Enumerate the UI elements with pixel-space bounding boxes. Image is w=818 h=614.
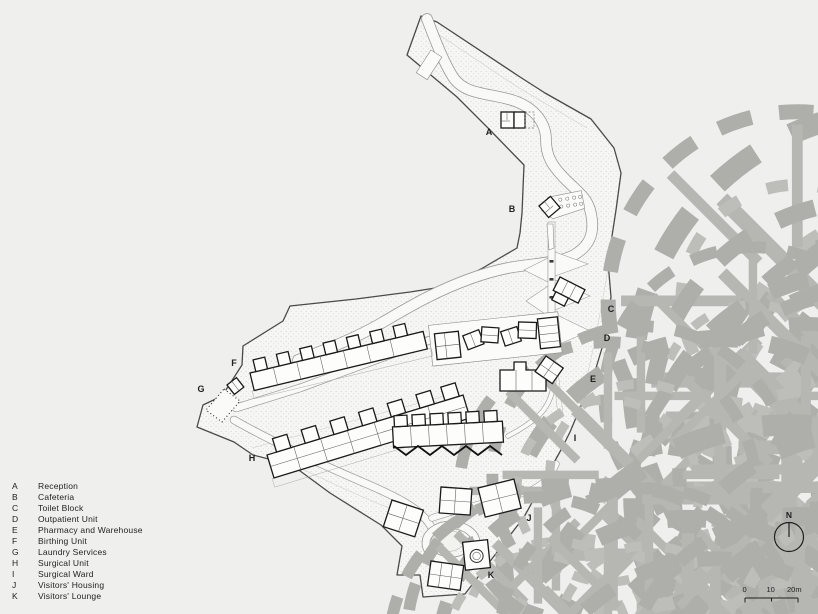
legend-key: I	[12, 569, 38, 579]
legend-key: B	[12, 492, 38, 502]
plan-label-C: C	[608, 304, 615, 314]
plan-label-K: K	[488, 570, 495, 580]
plan-label-I: I	[574, 433, 577, 443]
legend-item-G: GLaundry Services	[12, 547, 143, 558]
scale-tick-20m: 20m	[787, 585, 802, 594]
legend-label: Birthing Unit	[38, 536, 87, 546]
legend-item-C: CToilet Block	[12, 502, 143, 513]
legend-item-J: JVisitors' Housing	[12, 580, 143, 591]
plan-label-B: B	[509, 204, 516, 214]
legend: AReceptionBCafeteriaCToilet BlockDOutpat…	[12, 480, 143, 602]
plan-label-J: J	[526, 513, 531, 523]
legend-key: G	[12, 547, 38, 557]
legend-label: Outpatient Unit	[38, 514, 98, 524]
legend-label: Visitors' Lounge	[38, 591, 101, 601]
north-label: N	[786, 510, 792, 520]
legend-label: Pharmacy and Warehouse	[38, 525, 143, 535]
plan-label-F: F	[231, 358, 237, 368]
legend-key: C	[12, 503, 38, 513]
legend-key: J	[12, 580, 38, 590]
site-plan-page: ABCDEFGHIJK N 0 10 20m AReceptionBCafete…	[0, 0, 818, 614]
legend-item-D: DOutpatient Unit	[12, 513, 143, 524]
legend-label: Surgical Ward	[38, 569, 94, 579]
legend-key: K	[12, 591, 38, 601]
legend-item-H: HSurgical Unit	[12, 558, 143, 569]
legend-key: A	[12, 481, 38, 491]
legend-key: F	[12, 536, 38, 546]
legend-item-E: EPharmacy and Warehouse	[12, 524, 143, 535]
plan-label-D: D	[604, 333, 611, 343]
legend-key: E	[12, 525, 38, 535]
plan-label-E: E	[590, 374, 596, 384]
legend-item-I: ISurgical Ward	[12, 569, 143, 580]
legend-label: Reception	[38, 481, 78, 491]
legend-label: Laundry Services	[38, 547, 107, 557]
legend-label: Cafeteria	[38, 492, 74, 502]
legend-label: Visitors' Housing	[38, 580, 104, 590]
plan-label-H: H	[249, 453, 256, 463]
plan-label-G: G	[197, 384, 204, 394]
legend-key: H	[12, 558, 38, 568]
legend-item-B: BCafeteria	[12, 491, 143, 502]
plan-label-A: A	[486, 127, 493, 137]
legend-item-K: KVisitors' Lounge	[12, 591, 143, 602]
legend-key: D	[12, 514, 38, 524]
legend-item-A: AReception	[12, 480, 143, 491]
scale-tick-10: 10	[767, 585, 775, 594]
scale-tick-0: 0	[743, 585, 747, 594]
legend-item-F: FBirthing Unit	[12, 535, 143, 546]
legend-label: Toilet Block	[38, 503, 83, 513]
legend-label: Surgical Unit	[38, 558, 89, 568]
